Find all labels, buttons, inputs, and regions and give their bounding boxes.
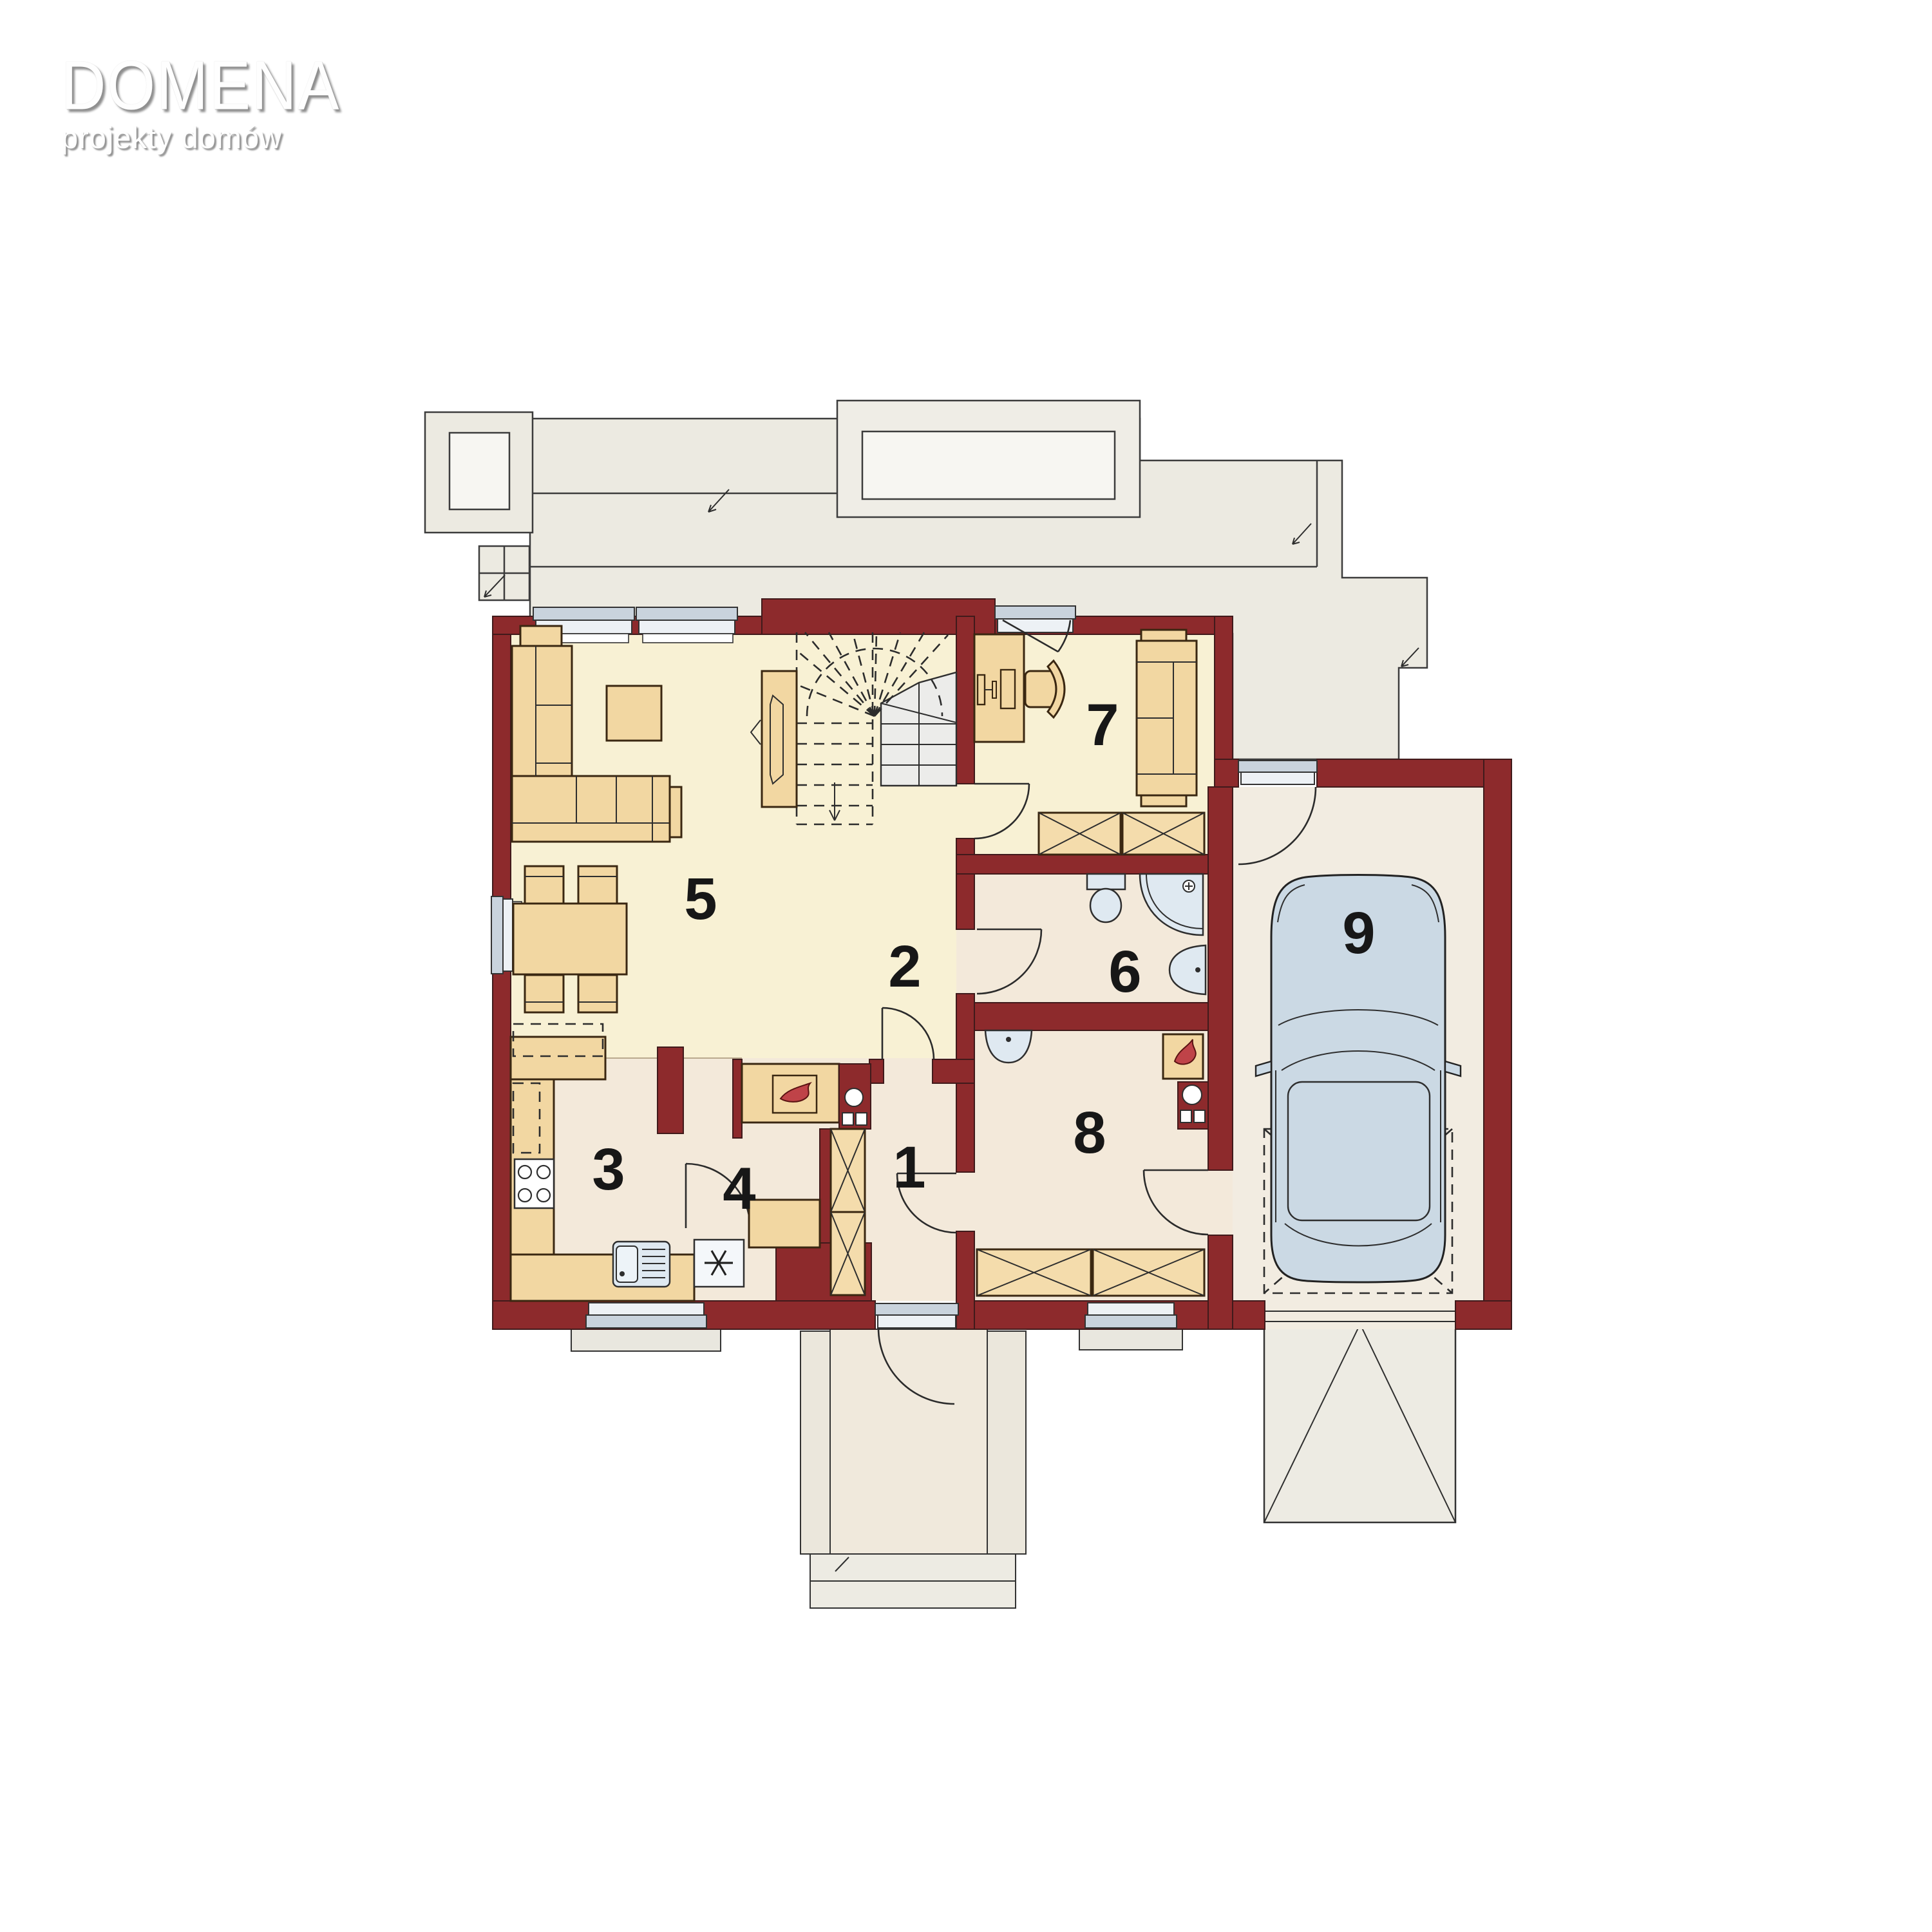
dining-chair — [578, 866, 617, 904]
room-label-7: 7 — [1086, 692, 1119, 758]
fridge-freezer — [694, 1240, 744, 1287]
pergola-structure — [837, 401, 1140, 517]
stove — [515, 1159, 554, 1208]
window-kitchen — [586, 1303, 706, 1328]
wall-kitchen-pantry — [658, 1047, 683, 1133]
room-label-3: 3 — [592, 1137, 625, 1202]
room-label-9: 9 — [1342, 900, 1375, 966]
chimney-room8 — [1178, 1082, 1208, 1129]
room-label-8: 8 — [1073, 1100, 1106, 1166]
coffee-table — [607, 686, 661, 741]
room-label-5: 5 — [684, 866, 717, 932]
wall-bath-north — [956, 855, 1208, 874]
toilet — [1087, 874, 1125, 922]
wall-garage-east — [1484, 759, 1511, 1329]
kitchen-sink — [613, 1242, 670, 1287]
dining-chair — [578, 975, 617, 1012]
entrance-door — [875, 1303, 958, 1328]
room8-wardrobe — [977, 1249, 1204, 1296]
terrace-column — [425, 412, 533, 600]
dining-chair — [525, 975, 563, 1012]
fireplace — [742, 1064, 839, 1122]
wall-garage-west — [1208, 787, 1233, 1170]
entry-step — [810, 1554, 1016, 1581]
entry-porch — [800, 1329, 1026, 1608]
wall-garage-north — [1317, 759, 1511, 787]
desk — [974, 634, 1024, 742]
garage-door-threshold — [1265, 1301, 1455, 1329]
office-sofa — [1137, 630, 1197, 806]
entry-hall-wardrobe — [831, 1129, 865, 1295]
wall-office-west — [956, 616, 974, 784]
room-label-1: 1 — [893, 1135, 925, 1200]
dining-chair — [525, 866, 563, 904]
floor-plan-drawing: 1 2 3 4 5 6 7 8 9 — [0, 0, 1932, 1932]
monitor-icon — [978, 675, 985, 705]
driveway — [1264, 1321, 1455, 1522]
window-room8 — [1085, 1303, 1177, 1328]
window-apron — [571, 1329, 721, 1351]
kitchen-counter-corner — [511, 1037, 605, 1079]
entry-step — [810, 1581, 1016, 1608]
window-living-2 — [636, 607, 737, 643]
pantry-shelf — [749, 1200, 820, 1247]
window-office — [995, 606, 1075, 632]
porch-pillar — [987, 1331, 1026, 1554]
dining-table — [513, 904, 627, 974]
floor-plan-page: DOMENA projekty domów — [0, 0, 1932, 1932]
room-label-6: 6 — [1108, 939, 1141, 1005]
room-label-2: 2 — [888, 934, 921, 999]
wall-south-c — [1455, 1301, 1511, 1329]
room-label-4: 4 — [723, 1156, 755, 1222]
boiler — [1163, 1034, 1203, 1079]
garage-side-door — [1238, 761, 1317, 784]
office-wardrobe — [1039, 813, 1204, 855]
chimney-kitchen — [839, 1064, 871, 1129]
porch-pillar — [800, 1331, 830, 1554]
window-apron — [1079, 1329, 1182, 1350]
wall-bath-south — [974, 1003, 1208, 1030]
